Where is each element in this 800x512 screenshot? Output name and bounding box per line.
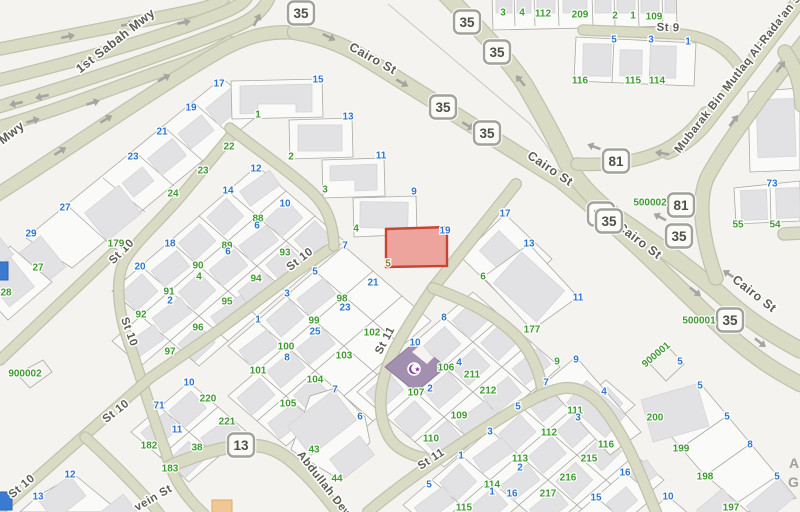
svg-text:102: 102 [364,328,381,339]
svg-text:3: 3 [284,289,290,300]
svg-text:183: 183 [162,464,179,475]
svg-text:4: 4 [456,358,462,369]
svg-text:1: 1 [489,487,495,498]
svg-text:28: 28 [0,288,12,299]
svg-text:216: 216 [560,473,577,484]
svg-text:500001: 500001 [682,316,716,327]
svg-text:6: 6 [480,272,486,283]
svg-text:5: 5 [515,402,521,413]
svg-text:19: 19 [439,226,451,237]
svg-text:5: 5 [312,267,318,278]
svg-text:13: 13 [32,492,44,503]
svg-text:92: 92 [135,310,147,321]
svg-text:35: 35 [293,6,309,21]
svg-text:54: 54 [769,220,781,231]
svg-text:10: 10 [279,199,291,210]
svg-text:94: 94 [250,274,262,285]
svg-text:1: 1 [458,451,464,462]
svg-text:7: 7 [332,385,338,396]
svg-text:104: 104 [307,375,324,386]
svg-text:24: 24 [167,189,179,200]
svg-text:3: 3 [648,35,654,46]
svg-text:200: 200 [647,413,664,424]
svg-text:35: 35 [601,214,617,229]
svg-text:115: 115 [456,503,473,512]
svg-text:1: 1 [630,11,636,22]
svg-text:55: 55 [732,220,744,231]
svg-text:4: 4 [601,387,607,398]
svg-text:15: 15 [590,493,602,504]
svg-text:5: 5 [697,381,703,392]
svg-text:12: 12 [64,470,76,481]
svg-text:90: 90 [192,261,204,272]
svg-text:112: 112 [541,428,558,439]
svg-text:10: 10 [662,492,674,503]
svg-text:110: 110 [423,434,440,445]
svg-text:44: 44 [331,474,343,485]
svg-text:209: 209 [572,10,589,21]
svg-text:23: 23 [127,152,139,163]
svg-text:81: 81 [673,198,689,213]
svg-text:12: 12 [250,164,262,175]
svg-text:179: 179 [108,239,125,250]
svg-text:35: 35 [479,126,495,141]
svg-text:8: 8 [747,440,753,451]
svg-text:5: 5 [677,357,683,368]
svg-text:14: 14 [222,186,234,197]
svg-text:23: 23 [339,303,351,314]
svg-text:5: 5 [724,412,730,423]
svg-text:2: 2 [612,11,618,22]
svg-text:G: G [788,474,799,490]
svg-text:43: 43 [308,445,320,456]
svg-text:197: 197 [723,503,740,512]
svg-text:38: 38 [191,443,203,454]
svg-text:107: 107 [408,388,425,399]
svg-text:1: 1 [255,110,261,121]
svg-text:5: 5 [611,35,617,46]
svg-text:22: 22 [223,142,235,153]
svg-text:109: 109 [646,12,663,23]
svg-text:105: 105 [280,399,297,410]
svg-text:11: 11 [172,425,183,436]
svg-text:11: 11 [376,151,387,162]
svg-text:5: 5 [426,480,432,491]
svg-text:35: 35 [489,45,505,60]
svg-text:198: 198 [697,472,714,483]
svg-text:13: 13 [233,438,249,453]
svg-text:6: 6 [254,221,260,232]
svg-text:100: 100 [278,342,295,353]
svg-text:1: 1 [255,315,261,326]
svg-text:900002: 900002 [8,369,42,380]
svg-text:9: 9 [573,355,579,366]
svg-text:17: 17 [499,209,511,220]
svg-text:27: 27 [32,263,44,274]
svg-text:11: 11 [573,293,584,304]
svg-text:3: 3 [322,185,328,196]
svg-text:177: 177 [524,325,541,336]
svg-text:116: 116 [598,440,615,451]
svg-text:93: 93 [279,248,291,259]
svg-text:2: 2 [288,152,294,163]
svg-text:5: 5 [385,259,391,270]
svg-text:4: 4 [196,272,202,283]
svg-text:81: 81 [608,154,624,169]
svg-text:500002: 500002 [633,198,667,209]
svg-text:21: 21 [367,278,379,289]
svg-text:17: 17 [213,79,225,90]
svg-text:13: 13 [342,112,354,123]
svg-text:16: 16 [506,489,518,500]
svg-text:112: 112 [535,9,552,20]
svg-text:114: 114 [649,76,666,87]
svg-text:19: 19 [185,103,197,114]
svg-text:215: 215 [581,454,598,465]
svg-text:212: 212 [480,386,497,397]
svg-text:221: 221 [219,417,236,428]
svg-text:220: 220 [200,394,217,405]
svg-text:115: 115 [625,76,642,87]
svg-text:4: 4 [519,8,525,19]
svg-text:95: 95 [221,297,233,308]
svg-text:73: 73 [766,179,778,190]
svg-text:2: 2 [427,384,433,395]
svg-text:101: 101 [250,366,267,377]
svg-text:15: 15 [312,75,324,86]
svg-text:35: 35 [671,229,687,244]
svg-text:21: 21 [156,127,168,138]
svg-text:1: 1 [685,37,691,48]
svg-text:16: 16 [619,468,631,479]
svg-text:7: 7 [543,378,549,389]
svg-text:8: 8 [441,313,447,324]
svg-text:27: 27 [59,203,71,214]
svg-text:3: 3 [575,413,581,424]
svg-text:7: 7 [342,241,348,252]
svg-text:5: 5 [774,472,780,483]
svg-text:35: 35 [722,313,738,328]
svg-text:211: 211 [464,370,481,381]
svg-text:71: 71 [153,401,165,412]
svg-text:96: 96 [192,323,204,334]
svg-text:29: 29 [25,229,37,240]
svg-text:217: 217 [540,489,557,500]
svg-text:23: 23 [197,166,209,177]
svg-text:25: 25 [309,327,321,338]
svg-text:35: 35 [459,15,475,30]
svg-text:10: 10 [409,338,421,349]
svg-text:8: 8 [284,353,290,364]
svg-text:13: 13 [523,239,535,250]
svg-text:18: 18 [164,239,176,250]
svg-text:182: 182 [141,441,158,452]
svg-text:10: 10 [183,378,195,389]
svg-text:116: 116 [572,76,589,87]
svg-text:109: 109 [451,411,468,422]
svg-text:103: 103 [336,351,353,362]
svg-text:20: 20 [134,262,146,273]
svg-text:A: A [789,455,799,471]
svg-text:2: 2 [517,463,523,474]
svg-text:6: 6 [225,247,231,258]
svg-text:97: 97 [164,347,176,358]
svg-text:35: 35 [435,100,451,115]
svg-text:99: 99 [308,316,320,327]
svg-text:2: 2 [167,296,173,307]
svg-text:3: 3 [487,427,493,438]
svg-text:9: 9 [554,357,560,368]
svg-text:9: 9 [411,187,417,198]
svg-text:St 9: St 9 [656,22,679,35]
svg-text:106: 106 [438,363,455,374]
svg-text:4: 4 [353,224,359,235]
svg-text:6: 6 [357,412,363,423]
svg-text:3: 3 [500,8,506,19]
svg-text:199: 199 [673,444,690,455]
